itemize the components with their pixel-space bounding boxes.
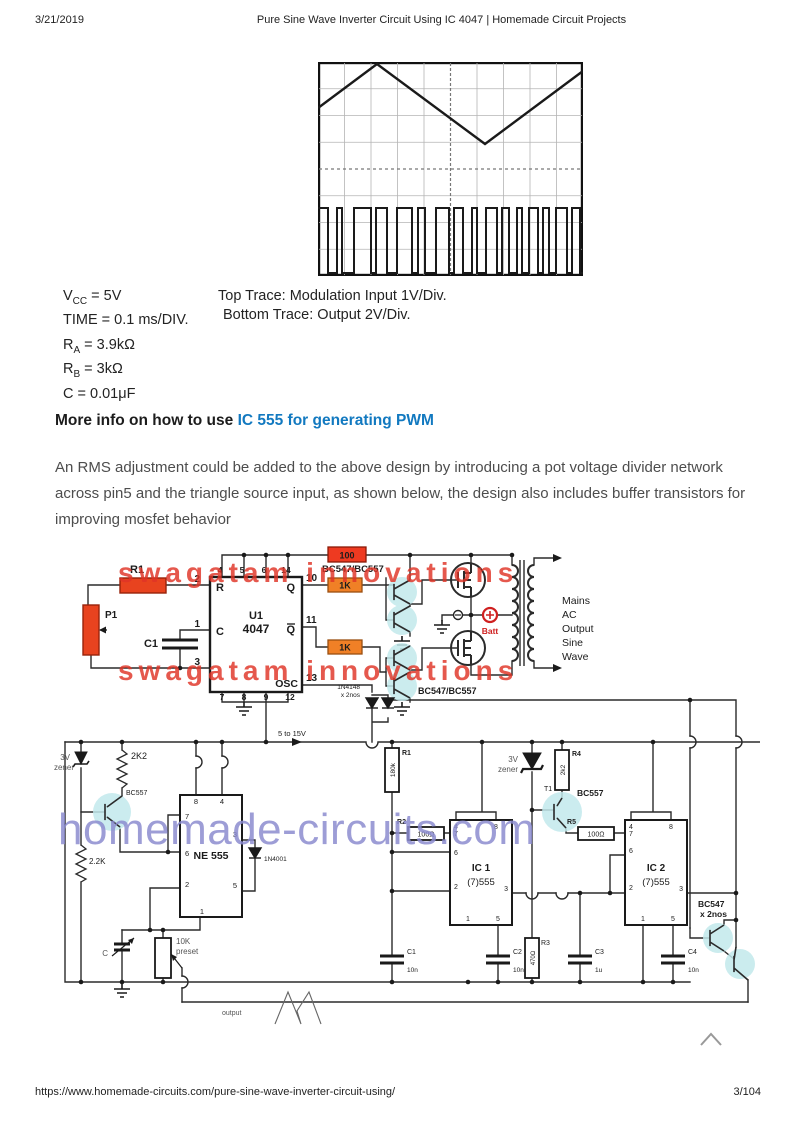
spec-line: C = 0.01μF [63,385,189,409]
label-1k-b: 1K [339,643,351,653]
triangle-wave-glyph [275,992,321,1024]
ic2-pin3: 3 [679,886,683,893]
u1-pin1: 1 [194,619,200,630]
label-r3-name: R3 [541,940,550,947]
watermark-red-2: swagatam innovations [118,655,518,686]
ic1-pin2: 2 [454,884,458,891]
ic555-pwm-link[interactable]: IC 555 for generating PWM [238,412,434,429]
ic1-pin5: 5 [496,916,500,923]
rail-arrow-icon [292,738,302,746]
ic1-name: IC 1 [472,863,491,874]
u1-pin12: 12 [285,692,295,702]
ic1-part: (7)555 [467,877,494,888]
label-preset-10k: 10K [176,937,191,946]
chevron-up-icon [701,1034,721,1045]
ic2-pin2: 2 [629,885,633,892]
label-bc547-qty: x 2nos [700,909,727,919]
label-cb2: C2 [513,949,522,956]
ne555-pin5: 5 [233,881,237,890]
label-cb3-val: 1u [595,967,603,974]
ic2-pin6: 6 [629,848,633,855]
article-paragraph: An RMS adjustment could be added to the … [55,455,757,533]
footer-url: https://www.homemade-circuits.com/pure-s… [35,1086,395,1098]
ic2-name: IC 2 [647,863,666,874]
watermark-purple: homemade-circuits.com [58,805,536,854]
label-t1: T1 [544,786,552,793]
label-bc-pair-bottom: BC547/BC557 [418,686,477,696]
ic1-pin3: 3 [504,886,508,893]
ne555-pin1: 1 [200,907,204,916]
label-bc557-right: BC557 [577,788,604,798]
label-mains: Mains [562,595,590,607]
label-cb2-val: 10n [513,967,524,974]
scope-trace-captions: Top Trace: Modulation Input 1V/Div. Bott… [218,287,447,324]
label-ac: AC [562,609,577,621]
label-1n4148-qty: x 2nos [341,692,361,699]
pot-p1 [83,605,99,655]
label-cb3: C3 [595,949,604,956]
output-arrow-icon [553,554,562,562]
footer-page-number: 3/104 [733,1086,761,1098]
u1-pin9: 9 [264,692,269,702]
scope-specs: VCC = 5V TIME = 0.1 ms/DIV. RA = 3.9kΩ R… [63,287,189,409]
label-r3-val: 470Ω [531,950,537,965]
print-page: 3/21/2019 Pure Sine Wave Inverter Circui… [0,0,793,1122]
label-cb4-val: 10n [688,967,699,974]
label-wave: Wave [562,651,589,663]
pot-wiper-arrow [99,627,106,634]
label-cb4: C4 [688,949,697,956]
label-r5-val: 100Ω [588,832,605,839]
label-r5-name: R5 [567,819,576,826]
u1-qbar: Q [286,624,295,636]
label-r4-name: R4 [572,751,581,758]
u1-name: U1 [249,610,263,622]
spec-line: RA = 3.9kΩ [63,336,189,360]
section-heading: More info on how to use IC 555 for gener… [55,412,434,430]
heading-text: More info on how to use [55,412,233,429]
label-r180-val: 180k [390,762,397,777]
spec-line: RB = 3kΩ [63,360,189,384]
u1-pin11: 11 [306,615,317,626]
ic2-pin5: 5 [671,916,675,923]
scroll-top-button[interactable] [698,1030,724,1050]
u1-pin7: 7 [220,692,225,702]
label-zener2-v: 3V [508,755,518,764]
ic2-pin1: 1 [641,916,645,923]
label-c1: C1 [144,638,158,650]
label-22k: 2.2K [89,857,106,866]
label-sine: Sine [562,637,583,649]
label-output: output [222,1010,242,1017]
preset-10k [155,938,171,978]
spec-line: TIME = 0.1 ms/DIV. [63,311,189,335]
print-title: Pure Sine Wave Inverter Circuit Using IC… [90,14,793,26]
label-bc557-left: BC557 [126,790,148,797]
spec-line: VCC = 5V [63,287,189,311]
ground-icon [394,702,410,715]
ic1-pin1: 1 [466,916,470,923]
label-zener2: zener [498,765,518,774]
trace-caption-top: Top Trace: Modulation Input 1V/Div. [218,287,447,306]
circuit-diagram: R1 P1 C1 100 BC547/BC557 1K 1K 4 5 6 14 … [50,540,760,1045]
label-zener1-v: 3V [60,753,70,762]
ne555-pin2: 2 [185,880,189,889]
u1-part: 4047 [243,622,270,636]
print-date: 3/21/2019 [35,14,84,26]
output-arrow-icon [553,664,562,672]
trace-caption-bottom: Bottom Trace: Output 2V/Div. [223,306,447,325]
label-2k2: 2K2 [131,751,147,761]
label-bc547: BC547 [698,899,725,909]
label-cb1-val: 10n [407,967,418,974]
label-1n4001: 1N4001 [264,856,287,863]
ground-icon [434,620,450,633]
u1-c: C [216,626,224,638]
ic2-pin4: 4 [629,824,633,831]
ic2-part: (7)555 [642,877,669,888]
ground-icon [236,702,252,715]
label-r4-val: 2k2 [560,764,567,775]
label-cb1: C1 [407,949,416,956]
label-zener1: zener [54,763,74,772]
watermark-red-1: swagatam innovations [118,557,518,588]
label-batt: Batt [482,626,499,636]
ic2-pin8: 8 [669,824,673,831]
ground-icon [114,984,130,997]
ic2-pin7: 7 [629,831,633,838]
label-cap-c: C [102,949,108,958]
label-r180-name: R1 [402,750,411,757]
label-supply: 5 to 15V [278,729,306,738]
u1-pin8: 8 [242,692,247,702]
label-preset: preset [176,947,199,956]
label-output-word: Output [562,623,594,635]
label-p1: P1 [105,610,118,621]
oscilloscope-image [318,62,583,276]
